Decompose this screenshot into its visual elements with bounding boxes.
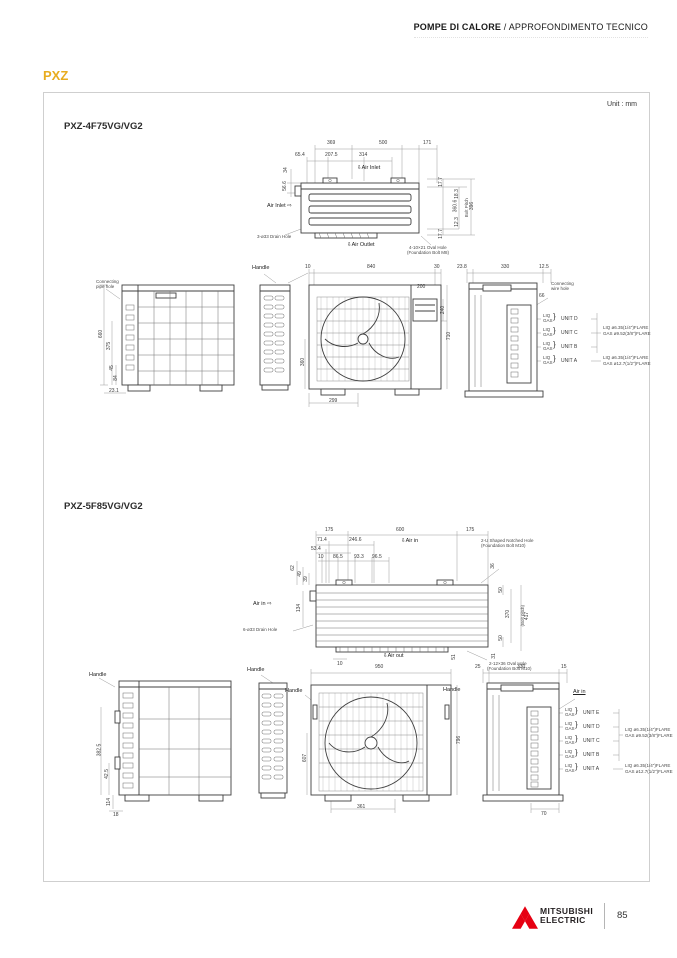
- gas-label: GAS: [565, 712, 575, 717]
- dim-label: 17.7: [438, 229, 444, 239]
- dim-label: 175: [466, 527, 474, 533]
- dim-label: 70: [541, 811, 547, 817]
- s2-back-view: Handle 382.5 42.5 114 18: [89, 667, 241, 817]
- dim-label: 23.1: [109, 388, 119, 394]
- page-number: 85: [617, 910, 628, 921]
- dim-label: 330: [517, 664, 525, 670]
- header-title-bold: POMPE DI CALORE: [414, 22, 502, 32]
- s1-top-view: 369 500 171 65.4 207.5 314 34 56.6 ⇩Air …: [271, 139, 489, 257]
- dim-label: 240: [440, 306, 446, 314]
- dim-label: 370: [505, 610, 511, 618]
- unit-label: UNIT D: [561, 316, 578, 322]
- dim-label: 175: [325, 527, 333, 533]
- dim-label: 660: [98, 330, 104, 338]
- unit-label: UNIT A: [561, 358, 577, 364]
- footer-divider: [604, 903, 605, 929]
- mitsubishi-logo-icon: [512, 906, 538, 929]
- dim-label: 18: [113, 812, 119, 818]
- gas-label: GAS: [565, 754, 575, 759]
- oval-hole-note2: (Foundation Bolt M8): [407, 250, 449, 255]
- brace: }: [553, 340, 556, 349]
- dim-label: 246.6: [349, 537, 362, 543]
- page-footer: MITSUBISHI ELECTRIC 85: [0, 898, 677, 943]
- gas-label: GAS: [543, 332, 553, 337]
- s1-back-view-drawing: [96, 269, 246, 401]
- pipe-spec: LIQ ø6.35(1/4")FLARE: [625, 727, 670, 732]
- dim-label: 50: [498, 635, 504, 641]
- connecting-wire-hole-label2: wire hole: [551, 286, 569, 291]
- dim-label: 23.8: [457, 264, 467, 270]
- unit-label: UNIT B: [561, 344, 577, 350]
- dim-label: 96.5: [372, 554, 382, 560]
- dim-label: 600: [396, 527, 404, 533]
- s2-pipe-side-view: 25 330 15 Air in LIQ GAS } UNIT E LIQ GA…: [471, 663, 649, 817]
- brace: }: [575, 762, 578, 771]
- air-in-label: Air in: [573, 689, 586, 696]
- dim-label: 417: [524, 612, 530, 620]
- brand-wordmark: MITSUBISHI ELECTRIC: [540, 907, 593, 925]
- dim-label: 12.3: [454, 217, 460, 227]
- dim-label: 360.6: [452, 200, 458, 213]
- notched-hole-note2: (Foundation Bolt M10): [481, 543, 526, 548]
- drain-hole-label: 3-ø33 Drain Hole: [257, 234, 291, 239]
- drain-hole-label: 6-ø33 Drain Hole: [243, 627, 277, 632]
- air-in-top-label: ⇩Air in: [401, 538, 418, 545]
- pipe-spec: LIQ ø6.35(1/4")FLARE: [603, 355, 648, 360]
- model-name-2: PXZ-5F85VG/VG2: [64, 501, 143, 512]
- unit-label: UNIT B: [583, 752, 599, 758]
- handle-label: Handle: [89, 672, 106, 679]
- s1-front-view: 10 840 30 200 240 710 360 299: [301, 261, 451, 409]
- dim-label: 607: [302, 754, 308, 762]
- unit-label: UNIT D: [583, 724, 600, 730]
- dim-label: 86.5: [333, 554, 343, 560]
- pipe-spec: GAS ø12.7(1/2")FLARE: [625, 769, 673, 774]
- pipe-spec: GAS ø12.7(1/2")FLARE: [603, 361, 651, 366]
- dim-label: 71.4: [317, 537, 327, 543]
- catalog-page: POMPE DI CALORE / APPROFONDIMENTO TECNIC…: [0, 0, 677, 958]
- dim-label: 361: [357, 804, 365, 810]
- dim-label: 360: [300, 358, 306, 366]
- unit-label: UNIT C: [583, 738, 600, 744]
- brand-line2: ELECTRIC: [540, 916, 593, 925]
- s2-back-view-drawing: [89, 667, 241, 817]
- gas-label: GAS: [565, 768, 575, 773]
- air-outlet-label: ⇩Air Outlet: [347, 242, 375, 249]
- handle-label: Handle: [247, 667, 264, 674]
- model-name-1: PXZ-4F75VG/VG2: [64, 121, 143, 132]
- dim-label: 51: [451, 654, 457, 660]
- dim-label: 42.5: [104, 769, 110, 779]
- dim-label: 200: [417, 284, 425, 290]
- page-header: POMPE DI CALORE / APPROFONDIMENTO TECNIC…: [414, 22, 648, 38]
- series-heading: PXZ: [43, 68, 68, 83]
- air-in-left-label: Air in ⇨: [253, 601, 272, 608]
- unit-label: UNIT E: [583, 710, 599, 716]
- s2-pipe-side-view-drawing: [471, 663, 649, 817]
- dim-label: 10: [305, 264, 311, 270]
- dim-label: 10: [318, 554, 324, 560]
- gas-label: GAS: [543, 360, 553, 365]
- pipe-spec: GAS ø9.52(3/8")FLARE: [603, 331, 651, 336]
- s1-front-view-drawing: [301, 261, 451, 409]
- header-title-sep: /: [501, 22, 509, 32]
- pipe-spec: LIQ ø6.35(1/4")FLARE: [603, 325, 648, 330]
- dim-label: 382.5: [96, 744, 102, 757]
- dim-label: 84: [113, 375, 119, 381]
- dim-label: 950: [375, 664, 383, 670]
- unit-note: Unit : mm: [607, 101, 637, 108]
- dim-label: 65.4: [295, 152, 305, 158]
- dim-label: 375: [106, 342, 112, 350]
- dim-label: 330: [501, 264, 509, 270]
- dim-label: 134: [296, 604, 302, 612]
- dim-label: 12.5: [539, 264, 549, 270]
- handle-label: Handle: [285, 688, 302, 695]
- brace: }: [553, 354, 556, 363]
- brace: }: [575, 748, 578, 757]
- brace: }: [553, 326, 556, 335]
- dim-label: 840: [367, 264, 375, 270]
- dim-label: 53.4: [311, 546, 321, 552]
- dim-label: 62: [290, 565, 296, 571]
- air-inlet-top-label: ⇩Air Inlet: [357, 165, 380, 172]
- gas-label: GAS: [543, 346, 553, 351]
- dim-label: 66: [539, 293, 545, 299]
- gas-label: GAS: [543, 318, 553, 323]
- dim-label: 39: [303, 576, 309, 582]
- dim-label: 50: [498, 587, 504, 593]
- header-title-rest: APPROFONDIMENTO TECNICO: [509, 22, 648, 32]
- dim-label: 45: [109, 365, 115, 371]
- dim-label: 396: [469, 202, 475, 210]
- brace: }: [553, 312, 556, 321]
- pipe-spec: GAS ø9.52(3/8")FLARE: [625, 733, 673, 738]
- dim-label: 36: [490, 563, 496, 569]
- dim-label: 171: [423, 140, 431, 146]
- handle-label: Handle: [252, 265, 269, 272]
- dim-label: 15: [561, 664, 567, 670]
- handle-label: Handle: [443, 687, 460, 694]
- dim-label: 30: [434, 264, 440, 270]
- s1-side-view: Handle: [248, 269, 300, 401]
- brace: }: [575, 734, 578, 743]
- dim-label: 500: [379, 140, 387, 146]
- s1-side-view-drawing: [248, 269, 300, 401]
- dim-label: 369: [327, 140, 335, 146]
- dim-label: 314: [359, 152, 367, 158]
- dim-label: 93.3: [354, 554, 364, 560]
- s2-top-view: 175 600 175 71.4 246.6 53.4 10 86.5 93.3…: [241, 527, 561, 669]
- unit-label: UNIT A: [583, 766, 599, 772]
- brace: }: [575, 720, 578, 729]
- gas-label: GAS: [565, 726, 575, 731]
- dim-label: 114: [106, 798, 112, 806]
- pipe-spec: LIQ ø6.35(1/4")FLARE: [625, 763, 670, 768]
- dim-label: 31: [491, 653, 497, 659]
- dim-label: 18.3: [454, 189, 460, 199]
- s1-back-view: Connecting pipe hole 660 375 45 84 23.1: [96, 269, 246, 401]
- s2-front-view: 950 Handle Handle 796 607 361: [301, 663, 471, 817]
- drawing-frame: Unit : mm PXZ-4F75VG/VG2 PXZ-5F85VG/VG2: [43, 92, 650, 882]
- dim-label: 56.6: [282, 181, 288, 191]
- brace: }: [575, 706, 578, 715]
- dim-label: 34: [283, 167, 289, 173]
- unit-label: UNIT C: [561, 330, 578, 336]
- dim-label: 207.5: [325, 152, 338, 158]
- gas-label: GAS: [565, 740, 575, 745]
- s1-pipe-side-view: 23.8 330 12.5 66 Connecting wire hole LI…: [451, 261, 649, 409]
- connecting-pipe-hole-label2: pipe hole: [96, 284, 114, 289]
- dim-label: 299: [329, 398, 337, 404]
- air-inlet-left-label: Air Inlet ⇨: [267, 203, 292, 210]
- dim-label: 796: [456, 736, 462, 744]
- dim-label: 25: [475, 664, 481, 670]
- dim-label: 17.7: [438, 177, 444, 187]
- air-out-label: ⇩Air out: [383, 653, 404, 660]
